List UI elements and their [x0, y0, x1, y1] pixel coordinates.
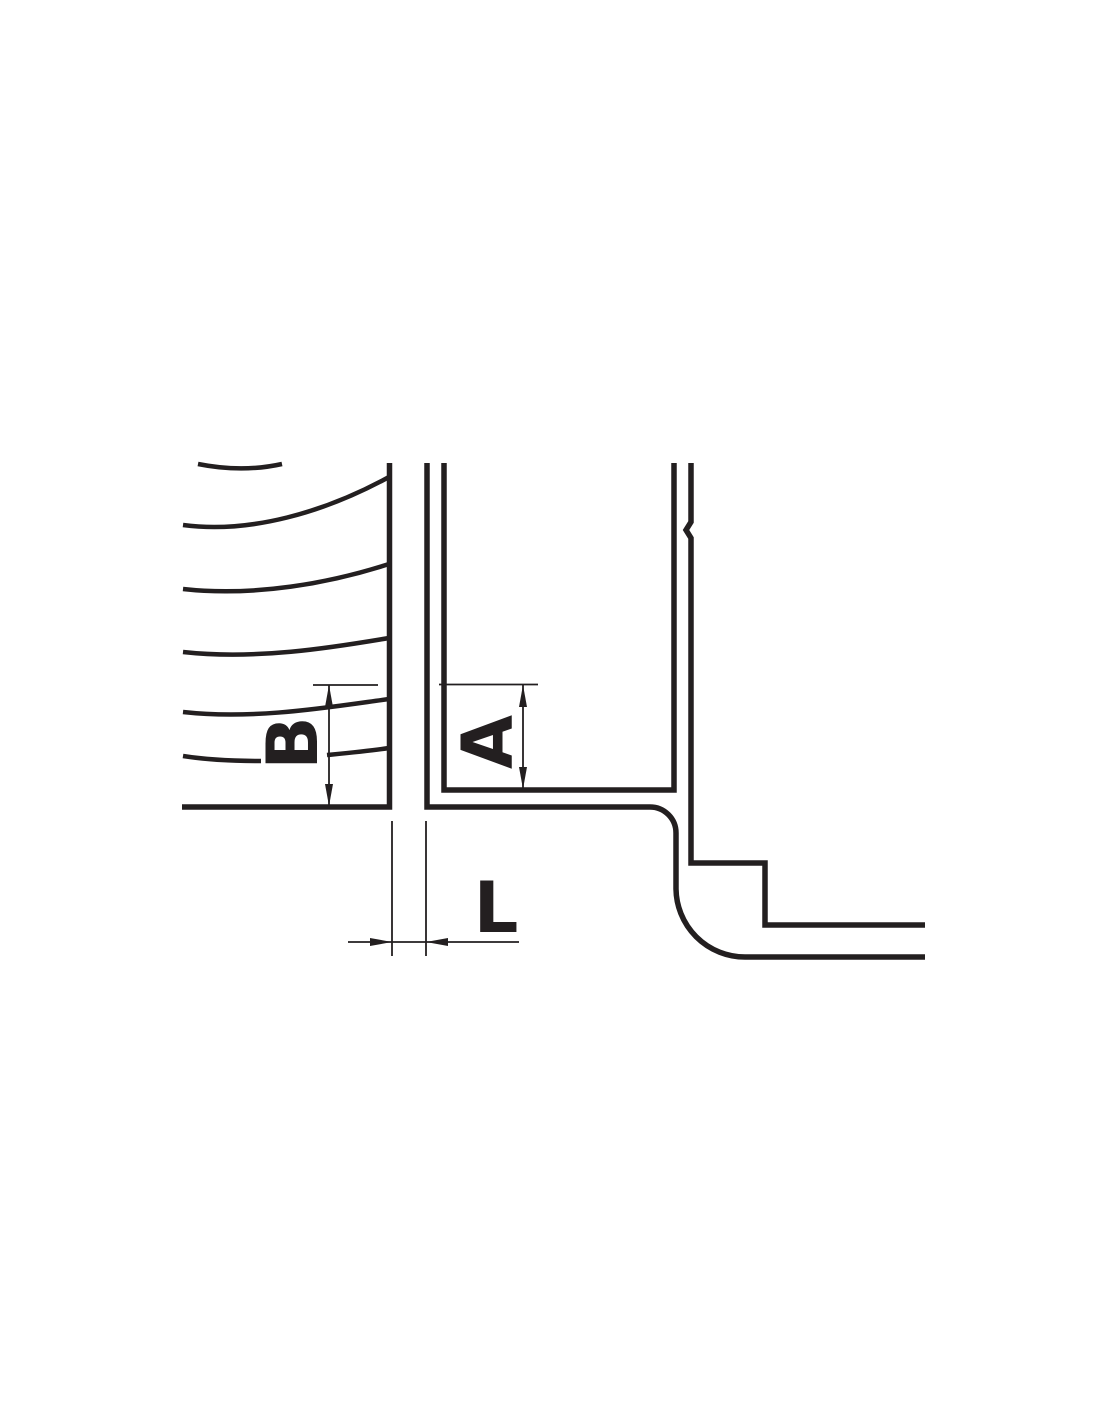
dim-a-arrow-up: [519, 685, 527, 707]
right-part: [686, 463, 925, 925]
grain-line-2: [183, 477, 389, 527]
grain-line-6-right: [327, 748, 389, 755]
dimension-l: L: [348, 821, 519, 956]
dimension-a: A: [439, 685, 538, 790]
dim-l-arrow-left: [426, 938, 448, 946]
grain-line-5: [183, 699, 389, 715]
technical-drawing: B A L: [0, 0, 1100, 1422]
grain-line-6-left: [183, 756, 261, 761]
dim-b-arrow-down: [325, 784, 333, 806]
dim-l-label: L: [474, 867, 519, 949]
dim-a-arrow-down: [519, 767, 527, 789]
dim-b-arrow-up: [325, 685, 333, 707]
page: B A L: [0, 0, 1100, 1422]
grain-line-3: [183, 564, 389, 591]
dim-l-arrow-right: [370, 938, 392, 946]
dim-b-label: B: [252, 716, 334, 769]
grain-line-1: [198, 464, 282, 469]
dim-a-label: A: [447, 715, 529, 769]
right-part-profile: [686, 463, 925, 925]
grain-line-4: [183, 638, 389, 655]
